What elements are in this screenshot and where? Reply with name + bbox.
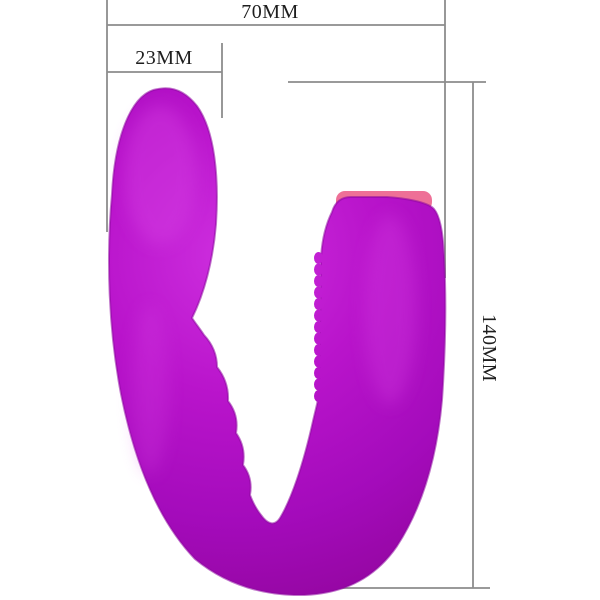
rib-bump [314,298,323,310]
head-width-label: 23MM [114,47,214,70]
rib-bump [314,321,323,333]
rib-bump [314,252,323,264]
rib-bump [314,379,323,391]
rib-bump [314,287,323,299]
rib-bump [314,333,323,345]
height-label: 140MM [477,314,500,382]
arm-highlight [364,215,416,405]
head-highlight [124,105,196,245]
rib-bump [314,264,323,276]
product-dimension-diagram: 70MM 23MM 140MM [0,0,600,600]
diagram-canvas [0,0,600,600]
rib-bump [314,275,323,287]
shaft-highlight [132,305,168,475]
rib-bump [314,367,323,379]
rib-bump [314,356,323,368]
width-top-label: 70MM [220,1,320,24]
rib-bump [314,310,323,322]
rib-bump [314,390,323,402]
rib-bump [314,344,323,356]
